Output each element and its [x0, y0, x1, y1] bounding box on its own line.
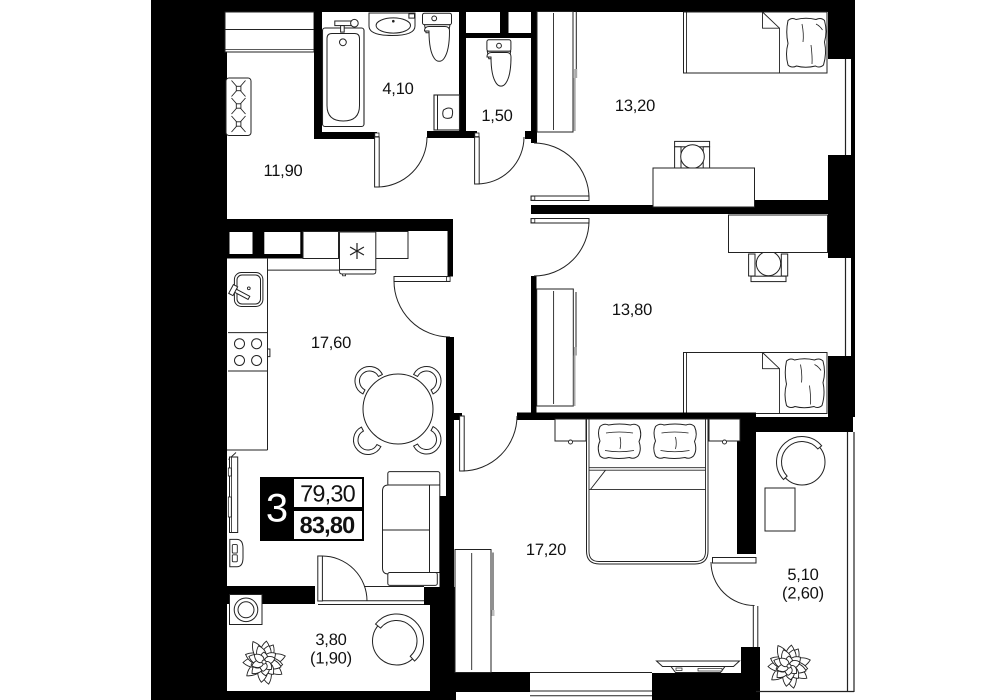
svg-text:3: 3	[266, 487, 288, 531]
svg-text:79,30: 79,30	[300, 481, 356, 507]
svg-text:3,80: 3,80	[315, 631, 346, 649]
svg-text:17,20: 17,20	[526, 541, 566, 559]
svg-text:13,20: 13,20	[615, 97, 655, 115]
svg-text:5,10: 5,10	[787, 566, 818, 584]
svg-text:83,80: 83,80	[300, 512, 356, 538]
svg-text:(1,90): (1,90)	[310, 650, 352, 668]
svg-text:(2,60): (2,60)	[782, 585, 824, 603]
svg-text:11,90: 11,90	[263, 162, 302, 180]
svg-text:4,10: 4,10	[382, 80, 413, 98]
svg-text:17,60: 17,60	[311, 334, 351, 352]
svg-text:13,80: 13,80	[612, 301, 652, 319]
svg-text:1,50: 1,50	[481, 107, 512, 125]
